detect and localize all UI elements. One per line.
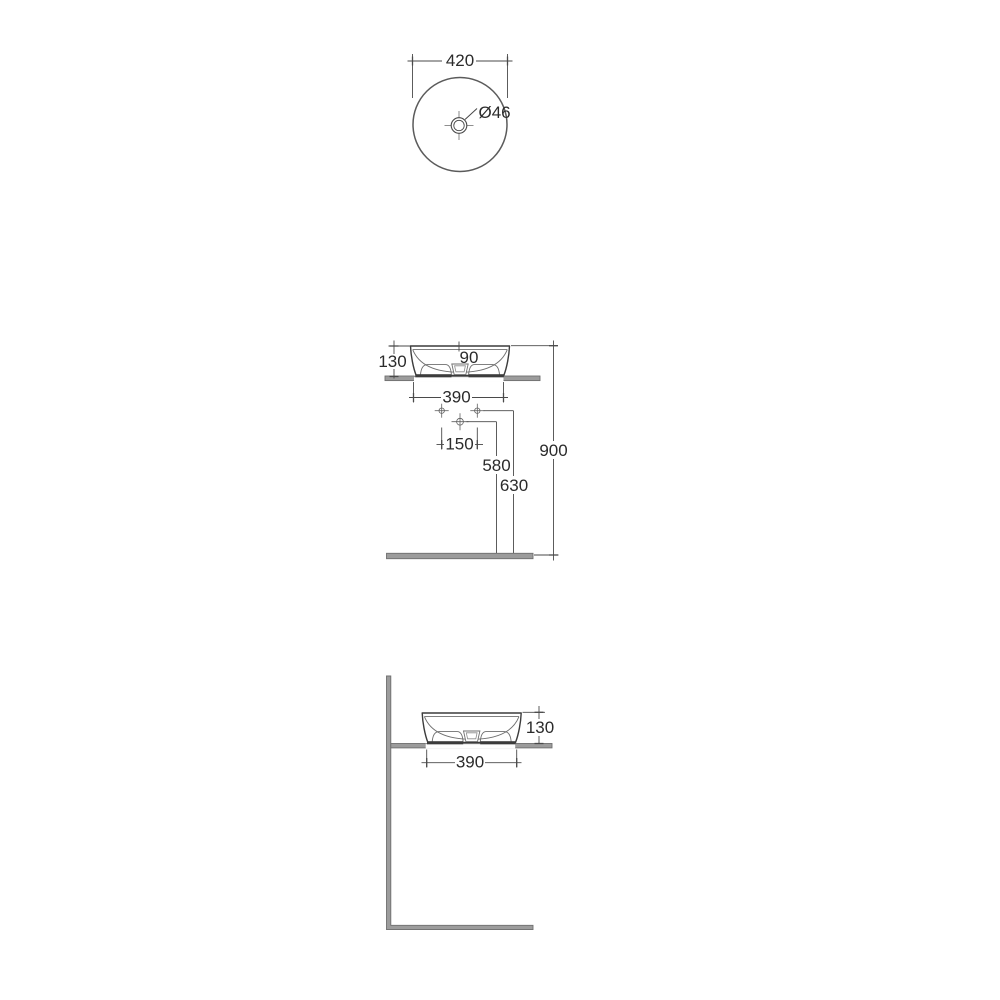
- drawing-page: 420 Ø46 90 130: [0, 0, 1000, 1000]
- drain-diameter-label: Ø46: [479, 103, 511, 122]
- front-view: 90 130 390: [378, 341, 567, 561]
- dim-label-580: 580: [482, 456, 510, 475]
- drain-hole-center: [452, 413, 469, 430]
- dim-label-390-side: 390: [456, 753, 484, 772]
- mounting-hole-right: [470, 404, 484, 418]
- top-view: 420 Ø46: [408, 51, 513, 172]
- dim-label-630: 630: [500, 476, 528, 495]
- basin-side: [422, 713, 521, 748]
- dim-label-90: 90: [460, 348, 479, 367]
- technical-drawing-canvas: 420 Ø46 90 130: [0, 0, 1000, 1000]
- dim-label-390-front: 390: [442, 388, 470, 407]
- dim-label-900: 900: [539, 441, 567, 460]
- dim-label-130-front: 130: [378, 352, 406, 371]
- dim-label-130-side: 130: [526, 718, 554, 737]
- dim-label-150: 150: [445, 435, 473, 454]
- dim-label-420: 420: [446, 51, 474, 70]
- shelf-front: [387, 553, 534, 558]
- side-view: 130 390: [387, 676, 555, 930]
